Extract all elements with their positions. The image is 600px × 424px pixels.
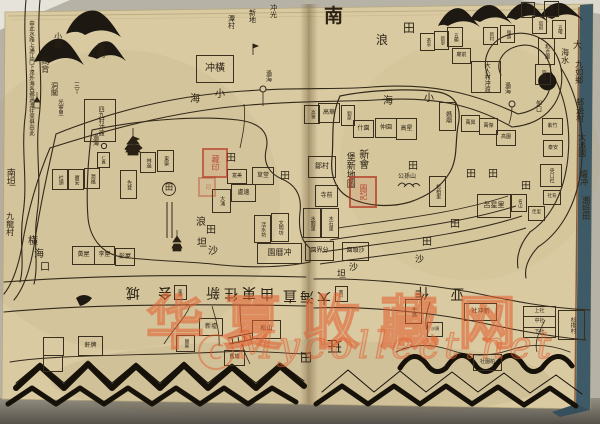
village-box: 園頭沙 bbox=[342, 242, 369, 261]
village-box: 軒牌 bbox=[78, 336, 103, 356]
map-label: 浪 bbox=[196, 218, 206, 229]
village-box: 冲橫 bbox=[196, 55, 234, 83]
map-label: 大 bbox=[573, 42, 582, 52]
village-box: 文明坊 bbox=[271, 213, 289, 242]
village-box: 閘口 bbox=[335, 286, 348, 302]
map-label: 田 bbox=[300, 350, 312, 363]
map-label: 田 bbox=[165, 184, 173, 193]
margin-place-name: 壇冲 bbox=[579, 170, 588, 186]
village-box: 沙頭 bbox=[427, 322, 443, 337]
village-box: 仲園 bbox=[375, 118, 397, 138]
village-box: 東榮 bbox=[157, 150, 174, 172]
shore-inscription-char: 大 bbox=[317, 289, 331, 304]
map-label: 龜岡 bbox=[96, 42, 105, 58]
village-box: 高星 bbox=[396, 118, 417, 140]
shore-inscription-char: 城 bbox=[126, 284, 140, 299]
map-label: 田 bbox=[450, 220, 460, 231]
red-seal-title: 圖記 bbox=[349, 176, 377, 208]
village-box bbox=[43, 337, 64, 356]
map-label: 小岡 bbox=[53, 32, 62, 48]
village-box-row: 下社 bbox=[524, 327, 555, 337]
village-box: 盧邊 bbox=[231, 184, 256, 202]
shore-inscription-char: 東 bbox=[242, 284, 256, 299]
village-box: 新墟 bbox=[199, 318, 223, 336]
village-box: 呂星里 bbox=[477, 194, 511, 218]
map-label: 橫 bbox=[28, 237, 38, 248]
village-box: 鳳山 bbox=[544, 1, 559, 17]
village-box: 媽廟 bbox=[439, 102, 456, 131]
village-box: 草堂 bbox=[252, 167, 274, 185]
map-label: 玨 bbox=[327, 338, 342, 354]
village-box: 萬興 bbox=[461, 115, 480, 132]
map-label: 海 bbox=[190, 95, 200, 106]
village-box: 上社中社下社 bbox=[523, 306, 556, 338]
map-label: 南坦 bbox=[4, 168, 14, 186]
map-label: 海 bbox=[34, 250, 44, 261]
shore-inscription-char: 会 bbox=[158, 284, 172, 299]
shore-inscription-char: 作 bbox=[415, 284, 429, 299]
village-box: 五顯 bbox=[447, 27, 463, 47]
map-label: 洞閣 bbox=[50, 82, 58, 96]
village-box: 嶺頭 bbox=[500, 25, 515, 43]
map-label: 坦 bbox=[337, 271, 346, 281]
map-label: 沙 bbox=[349, 264, 358, 274]
village-box-row: 中社 bbox=[524, 316, 555, 326]
map-labels-layer: 冲橫四九村冲渡社頭寶安潤福仁義林邊東榮先登黃屋李屋彭屋大涌盧邊草堂富美鄒村寺前水… bbox=[0, 0, 600, 424]
antique-map-photo: 冲橫四九村冲渡社頭寶安潤福仁義林邊東榮先登黃屋李屋彭屋大涌盧邊草堂富美鄒村寺前水… bbox=[0, 0, 600, 424]
village-box: 茶亭 bbox=[420, 33, 435, 51]
margin-place-name: 邨邊村 bbox=[575, 98, 584, 122]
village-box: 寺前 bbox=[315, 185, 338, 207]
village-box: 塔岡 bbox=[532, 16, 547, 34]
map-label: 光寧里 bbox=[56, 99, 62, 116]
village-box: 杉排村 bbox=[558, 310, 585, 340]
shore-inscription-char: 新 bbox=[206, 284, 220, 299]
village-box: 社冲新 bbox=[464, 303, 497, 321]
map-label: 冲光 bbox=[269, 4, 277, 18]
village-box: 五曜 bbox=[552, 20, 566, 39]
village-box: 富美 bbox=[227, 169, 247, 184]
village-box: 寶安 bbox=[68, 169, 84, 190]
map-label: 浪 bbox=[376, 34, 388, 47]
red-seal-small: 印 bbox=[198, 177, 216, 197]
map-label: 小 bbox=[215, 90, 225, 101]
map-label: 田 bbox=[280, 172, 290, 183]
village-box: 先登 bbox=[120, 170, 137, 199]
map-label: 小 bbox=[424, 94, 434, 105]
map-label: 九龍村 bbox=[5, 212, 14, 236]
village-box: 牛路 bbox=[405, 299, 422, 324]
village-box: 活水坊 bbox=[254, 215, 271, 243]
map-label: 田 bbox=[422, 238, 432, 249]
ferry-label: 過海 bbox=[264, 70, 270, 82]
map-label: 新地 bbox=[248, 9, 256, 23]
map-label: 三丫 bbox=[72, 82, 78, 94]
red-seal-collector: 藏印 bbox=[202, 148, 228, 178]
margin-place-name: 潮坦田 bbox=[581, 196, 590, 220]
village-box: 木石里 bbox=[321, 208, 339, 238]
compass-south-label: 南 bbox=[324, 6, 343, 27]
map-label: 沙 bbox=[208, 247, 218, 258]
village-box: 鄒村 bbox=[308, 156, 336, 178]
map-label: 田 bbox=[488, 170, 498, 181]
map-label: 田 bbox=[521, 182, 531, 193]
village-box: 仁義 bbox=[97, 152, 110, 168]
shore-inscription-char: 直 bbox=[283, 287, 297, 302]
village-box: 高園 bbox=[496, 130, 516, 146]
map-label: 夘口 bbox=[534, 100, 540, 112]
map-label: 田 bbox=[466, 170, 476, 181]
village-box: 新村 bbox=[483, 27, 498, 45]
village-box bbox=[43, 355, 63, 372]
map-label: 田 bbox=[206, 226, 216, 237]
map-label: 田 bbox=[408, 162, 418, 173]
village-box: 什園 bbox=[353, 120, 374, 138]
ferry-label: 過海 bbox=[503, 82, 509, 94]
village-box: 潤福 bbox=[84, 168, 100, 189]
village-box: 四九村冲渡 bbox=[84, 99, 116, 142]
shore-inscription-char: 亚 bbox=[450, 285, 464, 300]
shore-inscription-char: 往 bbox=[224, 285, 238, 300]
village-box: 廟前 bbox=[452, 48, 471, 64]
map-label: 沙 bbox=[415, 256, 424, 266]
map-title-column: 新會 bbox=[356, 149, 367, 169]
village-box: 佳里 bbox=[528, 206, 545, 221]
margin-place-name: 九如鄉 bbox=[574, 60, 583, 84]
village-box: 李屋 bbox=[94, 246, 115, 265]
village-box: 園界分 bbox=[305, 241, 334, 261]
village-box: 泰安 bbox=[543, 140, 563, 157]
map-label: 岡背 bbox=[40, 57, 49, 73]
village-box: 央口社 bbox=[540, 164, 562, 187]
village-box: 黃屋 bbox=[72, 246, 95, 265]
map-label: 潭村 bbox=[227, 15, 235, 29]
village-box: 和合圍 bbox=[538, 38, 555, 65]
route-annotation: 由此水路上通江門下達外海各鄉過渡往來俱由此 bbox=[27, 20, 33, 136]
shore-inscription-char: 海 bbox=[300, 288, 314, 303]
village-box: 舊墟 bbox=[224, 350, 245, 366]
map-label: 口 bbox=[40, 263, 50, 274]
village-box: 大人村冲渡 bbox=[471, 61, 501, 93]
village-box-row: 上社 bbox=[524, 307, 555, 316]
ferry-label: 過海 bbox=[91, 134, 97, 146]
village-box: 渡頭 bbox=[174, 285, 187, 300]
village-box: 林邊 bbox=[140, 152, 156, 173]
village-box: 彭屋 bbox=[115, 248, 135, 266]
village-box: 社園柏 bbox=[473, 354, 502, 371]
map-label: 公孫山 bbox=[398, 174, 416, 180]
map-label: 海 bbox=[383, 97, 393, 108]
shore-inscription-char: 由 bbox=[260, 285, 274, 300]
map-label: 海水 bbox=[560, 48, 569, 64]
margin-place-name: 大派園 bbox=[577, 133, 586, 157]
village-box: 松山 bbox=[252, 320, 281, 339]
village-box: 園曆冲 bbox=[257, 243, 302, 264]
village-box: 紫竹 bbox=[542, 118, 563, 135]
map-label: 坦 bbox=[197, 239, 207, 250]
village-box: 社頭 bbox=[52, 169, 68, 190]
village-box: 名山 bbox=[511, 194, 527, 212]
village-box: 高華 bbox=[318, 103, 340, 123]
village-box: 官田 bbox=[535, 64, 551, 85]
village-box: 社背 bbox=[543, 190, 561, 205]
village-box: 水關里 bbox=[303, 208, 321, 238]
village-box: 松柏里 bbox=[429, 176, 446, 207]
map-label: 田 bbox=[403, 22, 415, 35]
village-box: 朗尾 bbox=[176, 335, 195, 352]
